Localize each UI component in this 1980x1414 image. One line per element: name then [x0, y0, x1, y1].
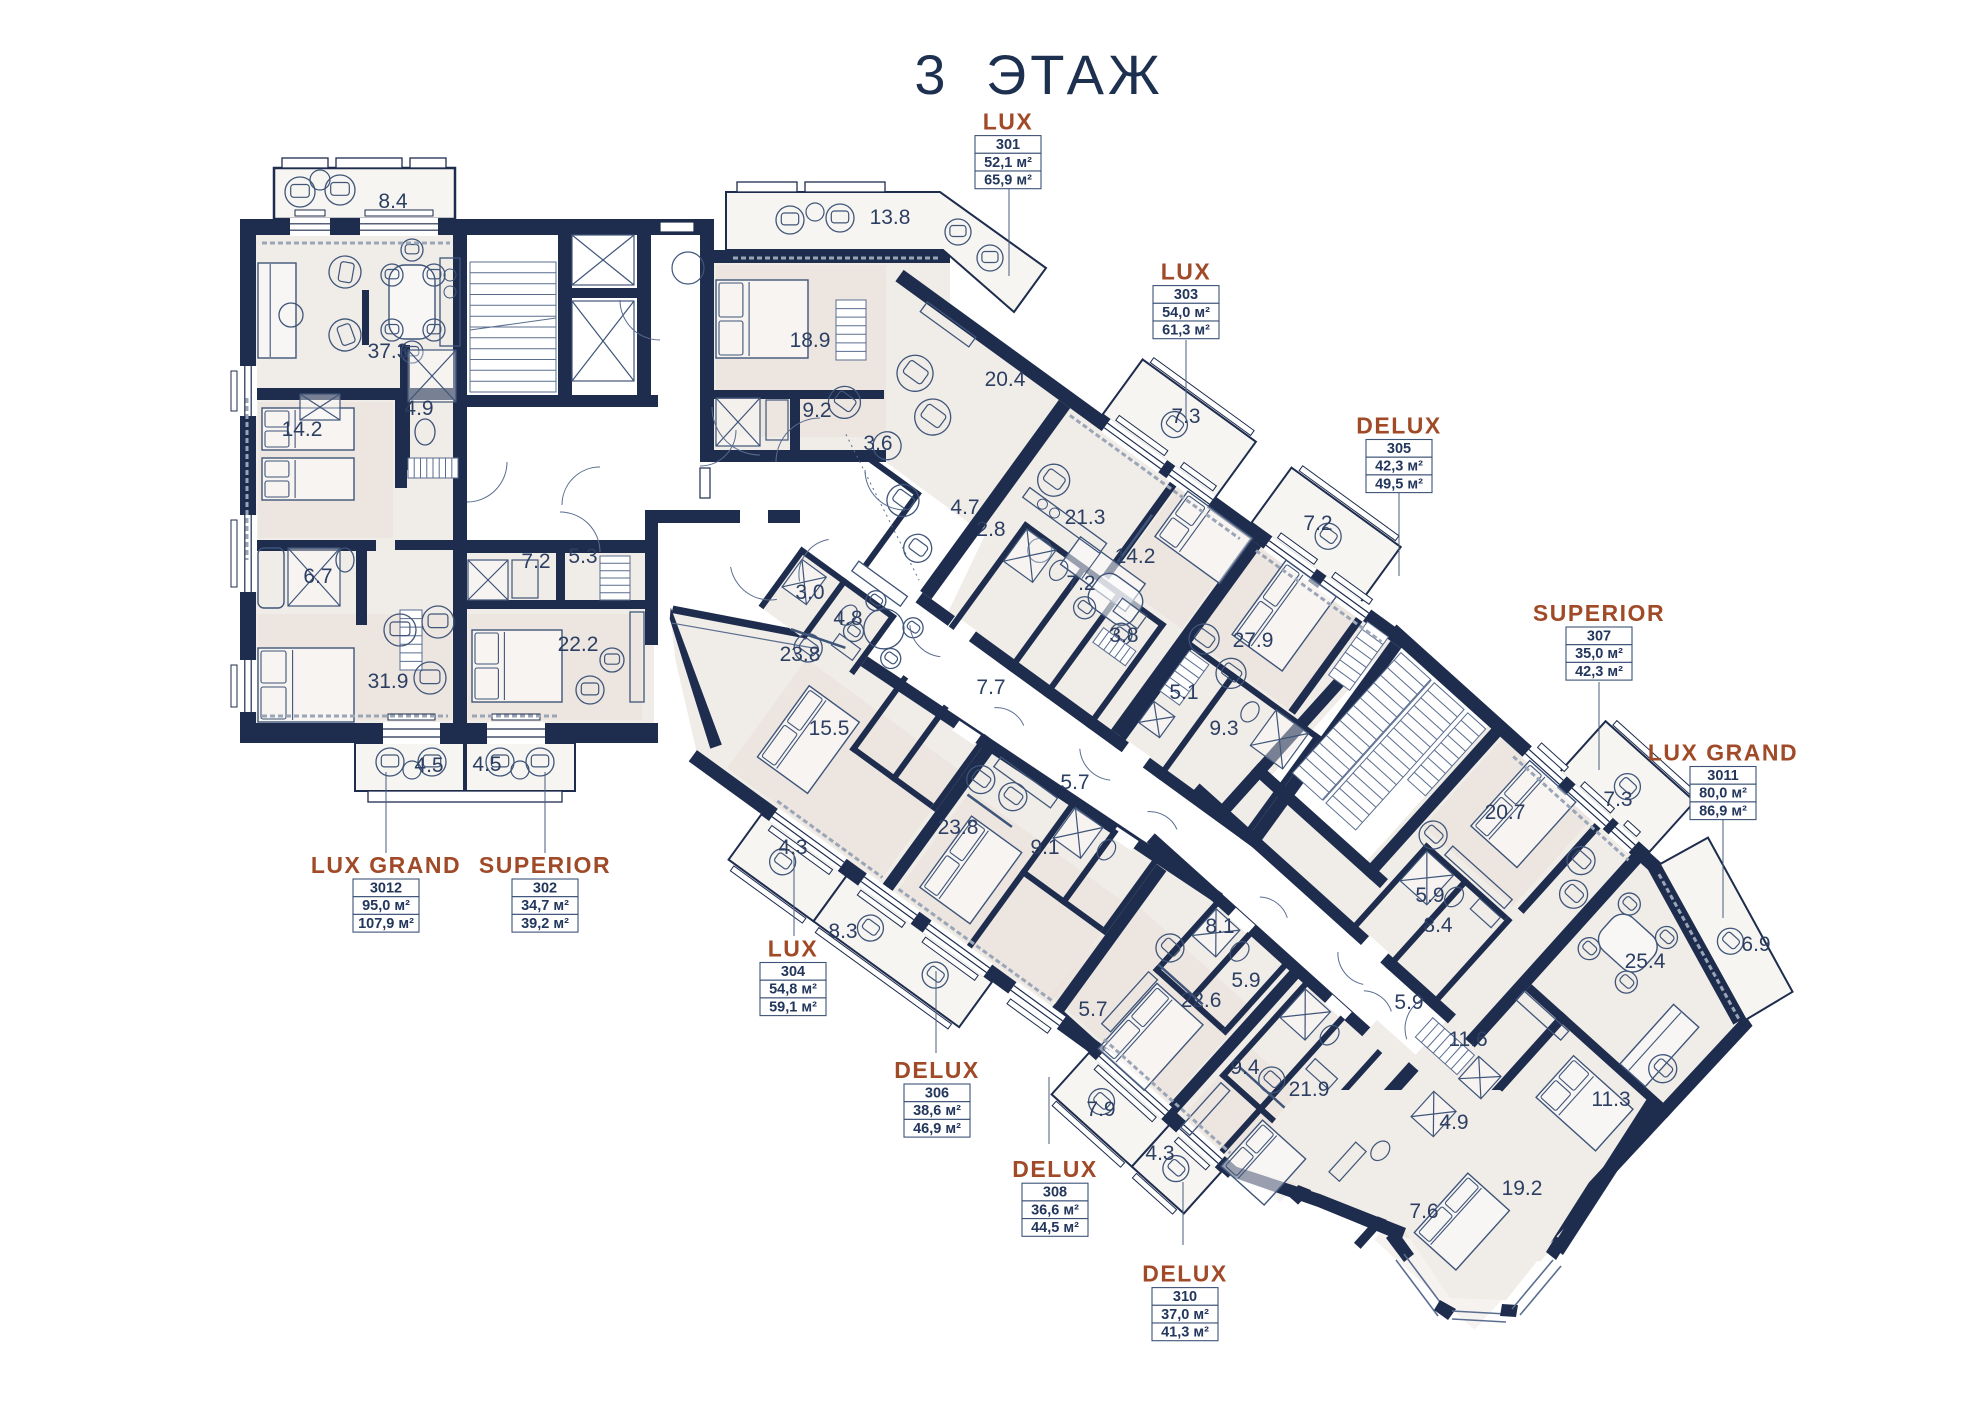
svg-text:4.9: 4.9 [1439, 1111, 1468, 1134]
svg-text:13.8: 13.8 [870, 206, 911, 229]
svg-text:8.4: 8.4 [1423, 914, 1453, 937]
svg-text:7.2: 7.2 [1066, 572, 1095, 595]
svg-text:7.6: 7.6 [1409, 1200, 1438, 1223]
svg-text:301: 301 [996, 137, 1020, 153]
svg-text:5.7: 5.7 [1078, 998, 1107, 1021]
svg-text:14.2: 14.2 [282, 418, 323, 441]
svg-text:52,1 м²: 52,1 м² [984, 155, 1032, 171]
svg-text:9.1: 9.1 [1030, 836, 1059, 859]
svg-text:5.9: 5.9 [1231, 969, 1260, 992]
svg-text:308: 308 [1043, 1185, 1067, 1201]
svg-text:8.3: 8.3 [828, 920, 857, 943]
svg-text:22.2: 22.2 [558, 633, 599, 656]
svg-text:DELUX: DELUX [1012, 1156, 1097, 1182]
svg-text:9.4: 9.4 [1230, 1056, 1260, 1079]
svg-text:31.9: 31.9 [368, 670, 409, 693]
svg-text:25.4: 25.4 [1625, 950, 1666, 973]
svg-text:42,3 м²: 42,3 м² [1375, 459, 1423, 475]
svg-text:4.7: 4.7 [950, 496, 979, 519]
svg-text:3.6: 3.6 [863, 432, 892, 455]
svg-text:6.7: 6.7 [303, 565, 332, 588]
svg-text:80,0 м²: 80,0 м² [1699, 786, 1747, 802]
svg-text:20.7: 20.7 [1485, 801, 1526, 824]
svg-text:27.9: 27.9 [1233, 629, 1274, 652]
svg-text:7.9: 7.9 [1086, 1098, 1115, 1121]
svg-text:SUPERIOR: SUPERIOR [1533, 600, 1665, 626]
svg-text:5.7: 5.7 [1060, 771, 1089, 794]
svg-text:11.3: 11.3 [1591, 1088, 1630, 1111]
svg-text:306: 306 [925, 1086, 949, 1102]
svg-text:37.3: 37.3 [368, 340, 409, 363]
svg-text:5.3: 5.3 [568, 545, 597, 568]
svg-text:5.9: 5.9 [1415, 884, 1444, 907]
svg-text:4.9: 4.9 [404, 397, 433, 420]
svg-text:20.4: 20.4 [985, 368, 1026, 391]
svg-text:LUX: LUX [768, 936, 819, 962]
svg-text:310: 310 [1173, 1289, 1197, 1305]
svg-text:7.3: 7.3 [1603, 788, 1632, 811]
svg-text:38,6 м²: 38,6 м² [913, 1103, 961, 1119]
svg-text:DELUX: DELUX [1142, 1261, 1227, 1287]
svg-text:LUX GRAND: LUX GRAND [311, 852, 461, 878]
svg-text:SUPERIOR: SUPERIOR [479, 852, 611, 878]
svg-text:5.1: 5.1 [1169, 681, 1198, 704]
svg-text:35,0 м²: 35,0 м² [1575, 646, 1623, 662]
svg-text:LUX GRAND: LUX GRAND [1648, 740, 1798, 766]
svg-text:54,8 м²: 54,8 м² [769, 982, 817, 998]
svg-text:39,2 м²: 39,2 м² [521, 916, 569, 932]
svg-text:19.2: 19.2 [1502, 1177, 1543, 1200]
svg-text:303: 303 [1174, 287, 1198, 303]
svg-text:23.8: 23.8 [780, 643, 821, 666]
svg-text:9.3: 9.3 [1209, 717, 1238, 740]
svg-text:11.6: 11.6 [1448, 1028, 1487, 1051]
svg-text:65,9 м²: 65,9 м² [984, 173, 1032, 189]
svg-text:41,3 м²: 41,3 м² [1161, 1325, 1209, 1341]
svg-text:14.2: 14.2 [1115, 545, 1156, 568]
svg-text:42,3 м²: 42,3 м² [1575, 664, 1623, 680]
svg-text:2.8: 2.8 [976, 518, 1005, 541]
svg-text:37,0 м²: 37,0 м² [1161, 1307, 1209, 1323]
svg-text:21.9: 21.9 [1289, 1078, 1330, 1101]
svg-text:LUX: LUX [983, 109, 1034, 135]
svg-text:3012: 3012 [370, 881, 402, 897]
svg-text:3.8: 3.8 [1109, 624, 1138, 647]
svg-text:36,6 м²: 36,6 м² [1031, 1202, 1079, 1218]
svg-text:4.3: 4.3 [1145, 1142, 1174, 1165]
svg-text:107,9 м²: 107,9 м² [358, 916, 414, 932]
svg-text:34,7 м²: 34,7 м² [521, 898, 569, 914]
svg-text:4.3: 4.3 [778, 836, 807, 859]
svg-text:7.7: 7.7 [976, 676, 1005, 699]
svg-text:DELUX: DELUX [1356, 413, 1441, 439]
svg-text:3011: 3011 [1707, 768, 1738, 784]
svg-text:4.5: 4.5 [414, 754, 443, 777]
svg-text:21.3: 21.3 [1065, 506, 1106, 529]
svg-text:7.2: 7.2 [521, 550, 550, 573]
svg-text:DELUX: DELUX [894, 1057, 979, 1083]
svg-text:5.9: 5.9 [1394, 991, 1423, 1014]
svg-text:305: 305 [1387, 441, 1411, 457]
svg-text:ЭТАЖ: ЭТАЖ [986, 43, 1164, 106]
svg-text:59,1 м²: 59,1 м² [769, 999, 817, 1015]
svg-text:8.4: 8.4 [378, 190, 408, 213]
svg-text:49,5 м²: 49,5 м² [1375, 476, 1423, 492]
svg-text:61,3 м²: 61,3 м² [1162, 323, 1210, 339]
svg-text:9.2: 9.2 [802, 399, 831, 422]
svg-text:LUX: LUX [1161, 259, 1212, 285]
svg-text:23.8: 23.8 [938, 816, 979, 839]
svg-text:304: 304 [781, 964, 805, 980]
svg-text:46,9 м²: 46,9 м² [913, 1121, 961, 1137]
svg-text:302: 302 [533, 881, 557, 897]
svg-text:86,9 м²: 86,9 м² [1699, 803, 1747, 819]
svg-text:3.0: 3.0 [795, 581, 824, 604]
svg-text:307: 307 [1587, 629, 1611, 645]
svg-text:18.9: 18.9 [790, 329, 831, 352]
svg-text:4.8: 4.8 [833, 607, 862, 630]
svg-text:3: 3 [914, 43, 945, 106]
svg-text:7.2: 7.2 [1303, 512, 1332, 535]
svg-text:54,0 м²: 54,0 м² [1162, 305, 1210, 321]
svg-text:15.5: 15.5 [809, 717, 850, 740]
svg-text:95,0 м²: 95,0 м² [362, 898, 410, 914]
svg-text:8.1: 8.1 [1205, 915, 1234, 938]
svg-text:44,5 м²: 44,5 м² [1031, 1220, 1079, 1236]
svg-text:4.5: 4.5 [472, 753, 501, 776]
svg-text:6.9: 6.9 [1741, 933, 1770, 956]
svg-text:22.6: 22.6 [1181, 989, 1222, 1012]
